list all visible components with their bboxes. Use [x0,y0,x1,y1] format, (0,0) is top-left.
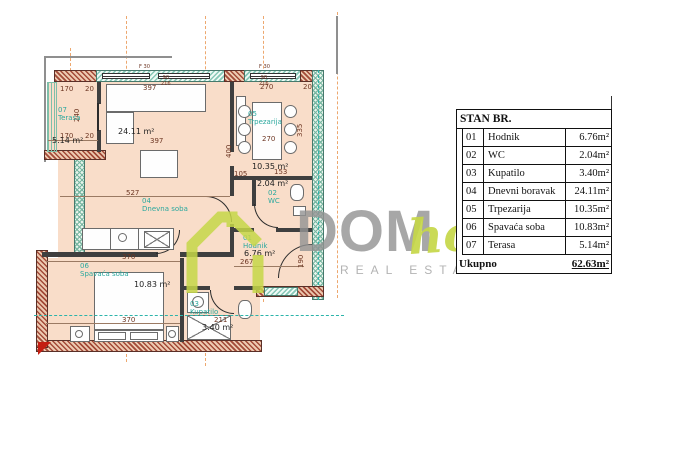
row-area: 10.35m² [565,201,611,218]
table-row: 04 Dnevni boravak 24.11m² [462,183,611,201]
wall-exterior-left [36,250,48,348]
row-name: Dnevni boravak [484,183,565,200]
toilet-icon [290,184,304,201]
balcony-door-leaf [97,103,99,131]
entrance-arrow-icon [38,342,51,355]
dimension-label: 170 [60,86,73,93]
chair [284,105,297,118]
row-num: 02 [462,147,484,164]
wall-hall-bath [184,286,210,290]
row-num: 05 [462,201,484,218]
row-num: 03 [462,165,484,182]
wall-exterior [224,70,246,82]
row-area: 5.14m² [565,237,611,254]
pillow [98,332,126,340]
room-area-spavaca: 10.83 m² [134,280,170,289]
dimension-label: 20 [303,84,312,91]
cabinet [236,96,246,146]
kitchen-divider [138,228,139,250]
row-area: 6.76m² [565,129,611,146]
wall-living-dining [230,82,234,152]
room-label-wc: 02WC [268,189,280,205]
chair [238,141,251,154]
section-line-horizontal [34,315,344,316]
wall-partition [97,130,101,152]
row-num: 07 [462,237,484,254]
room-label-kupatilo: 03Kupatilo [190,300,218,316]
window-icon [250,73,296,79]
coffee-table [140,150,178,178]
room-area-wc: 2.04 m² [257,179,288,188]
window-icon [102,73,150,79]
dimension-label: 267 [240,259,253,266]
room-area-terasa: 5.14 m² [52,136,83,145]
pillow [130,332,158,340]
wall-window-band [264,287,298,296]
dimension-label: 400 [226,145,233,158]
wall-hall-bath [234,286,260,290]
floor-plan: 170 20 240 170 20 397 397 527 270 20 270… [0,0,420,455]
kitchen-divider [110,228,111,250]
row-area: 10.83m² [565,219,611,236]
table-row: 01 Hodnik 6.76m² [462,129,611,147]
building-edge-line [336,16,338,74]
room-label-spavaca: 06Spavaća soba [80,262,129,278]
dimension-label: 270 [262,136,275,143]
row-num: 06 [462,219,484,236]
toilet-icon [238,300,252,319]
dimension-label: 370 [122,254,135,261]
wall-living-bedroom [180,252,234,257]
total-label: Ukupno [457,255,559,273]
dimension-label: 370 [122,317,135,324]
window-mark: 216 [161,81,171,86]
wall-wc-left [252,180,256,206]
row-name: Hodnik [484,129,565,146]
table-total-row: Ukupno 62.63m² [457,255,611,273]
dimension-label: 105 [234,171,247,178]
room-area-kupatilo: 3.40 m² [202,323,233,332]
dimension-label: 190 [298,255,305,268]
table-row: 02 WC 2.04m² [462,147,611,165]
table-row: 06 Spavaća soba 10.83m² [462,219,611,237]
total-area: 62.63m² [559,255,611,273]
dimension-label: 20 [85,86,94,93]
dimension-label: 20 [85,133,94,140]
nightstand-lamp [168,330,176,338]
row-name: Kupatilo [484,165,565,182]
row-name: Terasa [484,237,565,254]
room-area-trpezarija: 10.35 m² [252,162,288,171]
row-area: 2.04m² [565,147,611,164]
room-label-hodnik: 01Hodnik [243,234,267,250]
row-num: 01 [462,129,484,146]
area-table: STAN BR. 01 Hodnik 6.76m² 02 WC 2.04m² 0… [456,109,612,274]
row-name: Spavaća soba [484,219,565,236]
wall-living-hall [230,224,234,254]
sink-icon [118,233,127,242]
dimension-line [46,323,180,324]
window-mark: F 30 [139,64,150,69]
row-area: 3.40m² [565,165,611,182]
window-mark: F 30 [259,64,270,69]
room-area-dnevna: 24.11 m² [118,127,154,136]
room-area-hodnik: 6.76 m² [244,249,275,258]
table-row: 03 Kupatilo 3.40m² [462,165,611,183]
table-header: STAN BR. [457,110,611,129]
washbasin-icon [293,206,306,216]
dimension-label: 397 [143,85,156,92]
table-row: 07 Terasa 5.14m² [462,237,611,255]
stove-icon [144,231,170,248]
row-num: 04 [462,183,484,200]
window-mark: 216 [259,81,269,86]
dimension-line [234,266,304,267]
row-name: Trpezarija [484,201,565,218]
wall-wc-bottom [276,228,312,232]
row-name: WC [484,147,565,164]
room-label-trpezarija: 05Trpezarija [248,110,282,126]
room-label-terasa: 07Terasa [58,106,81,122]
wall-living-hall [230,182,234,196]
section-line-vertical [318,70,319,300]
nightstand-lamp [75,330,83,338]
dimension-label: 527 [126,190,139,197]
row-area: 24.11m² [565,183,611,200]
page: { "table": { "header": "STAN BR.", "rows… [0,0,683,455]
chair [284,141,297,154]
dimension-label: 335 [297,124,304,137]
dimension-label: 397 [150,138,163,145]
table-top-tick [611,96,612,109]
wall-living-bedroom [42,252,158,257]
table-row: 05 Trpezarija 10.35m² [462,201,611,219]
wall-partition [97,82,101,104]
wall-exterior [54,70,98,82]
room-label-dnevna: 04Dnevna soba [142,197,188,213]
wall-bedroom-bath [180,258,184,342]
